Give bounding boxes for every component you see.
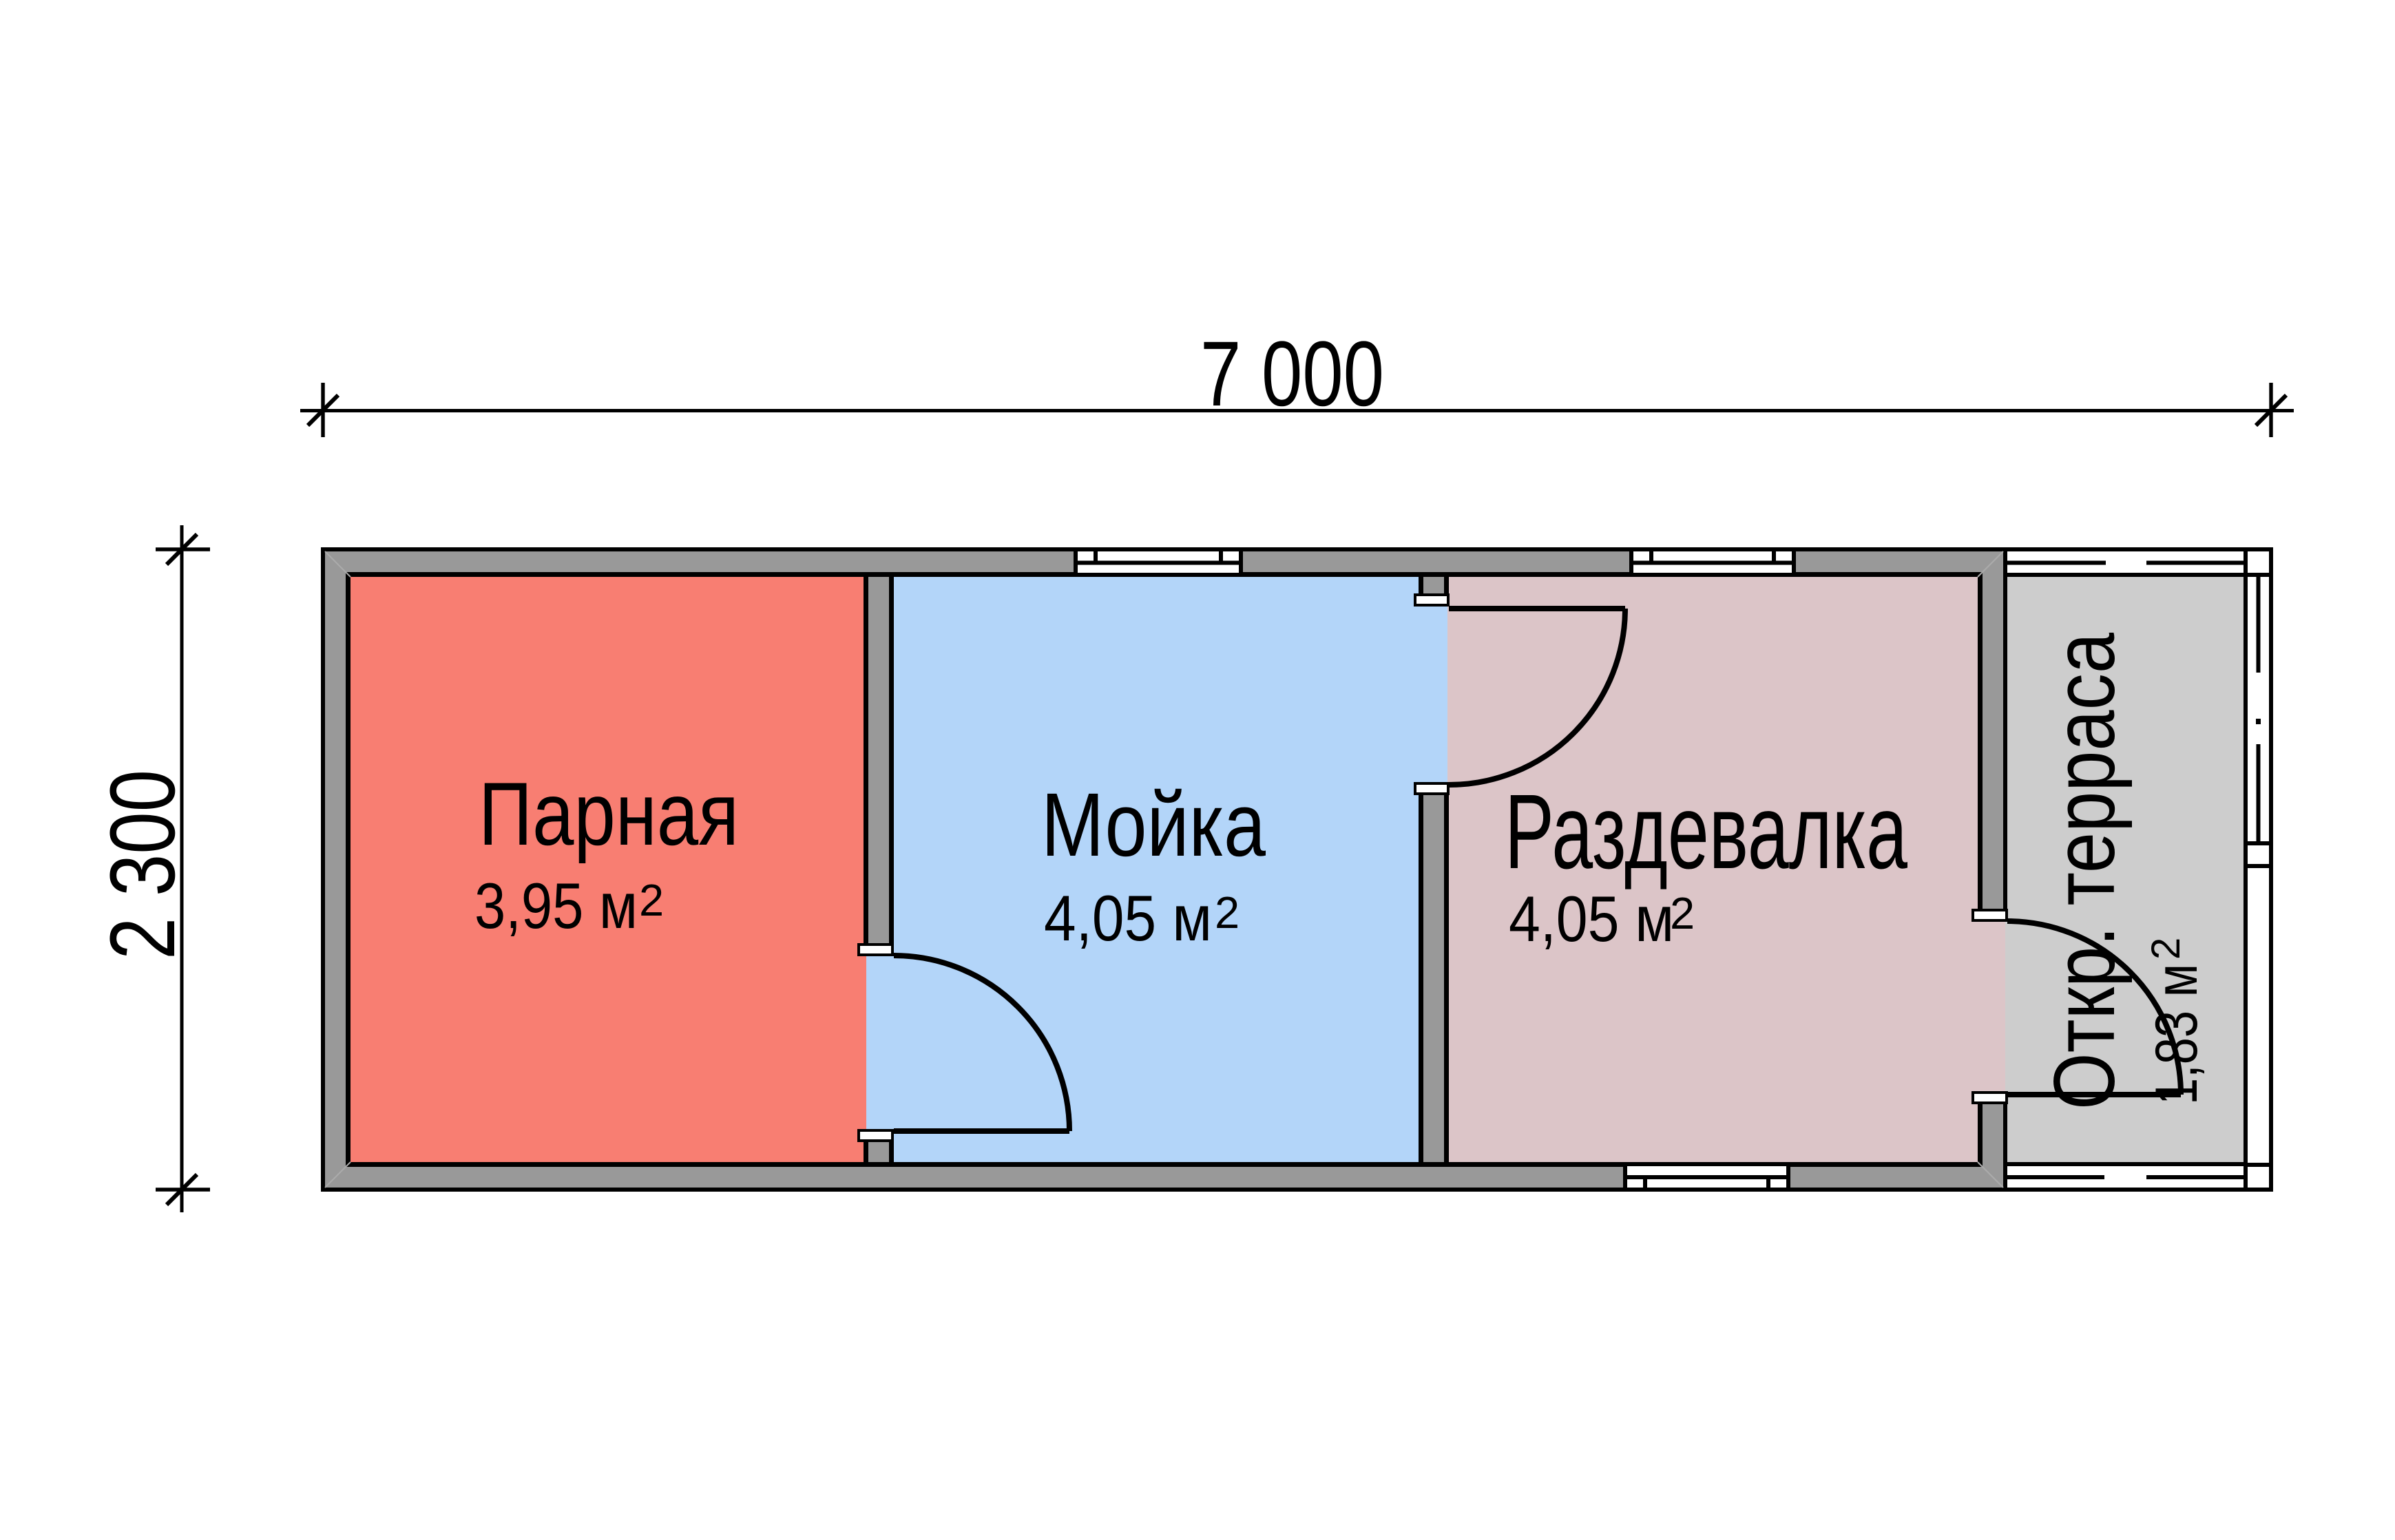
svg-text:Откр. терраса: Откр. терраса (2037, 633, 2133, 1110)
svg-text:3,95 м: 3,95 м (474, 869, 638, 942)
svg-text:2: 2 (1215, 887, 1240, 938)
svg-text:2: 2 (639, 875, 664, 925)
svg-text:Мойка: Мойка (1041, 774, 1266, 875)
svg-text:4,05 м: 4,05 м (1509, 883, 1674, 955)
svg-text:1,83 м: 1,83 м (2144, 964, 2210, 1105)
svg-text:7 000: 7 000 (1200, 323, 1384, 425)
svg-text:2: 2 (2144, 938, 2188, 960)
svg-text:2: 2 (1670, 888, 1695, 938)
svg-text:Раздевалка: Раздевалка (1505, 772, 1907, 891)
svg-text:2 300: 2 300 (92, 770, 194, 960)
svg-text:4,05 м: 4,05 м (1044, 882, 1212, 954)
svg-text:Парная: Парная (479, 763, 739, 864)
